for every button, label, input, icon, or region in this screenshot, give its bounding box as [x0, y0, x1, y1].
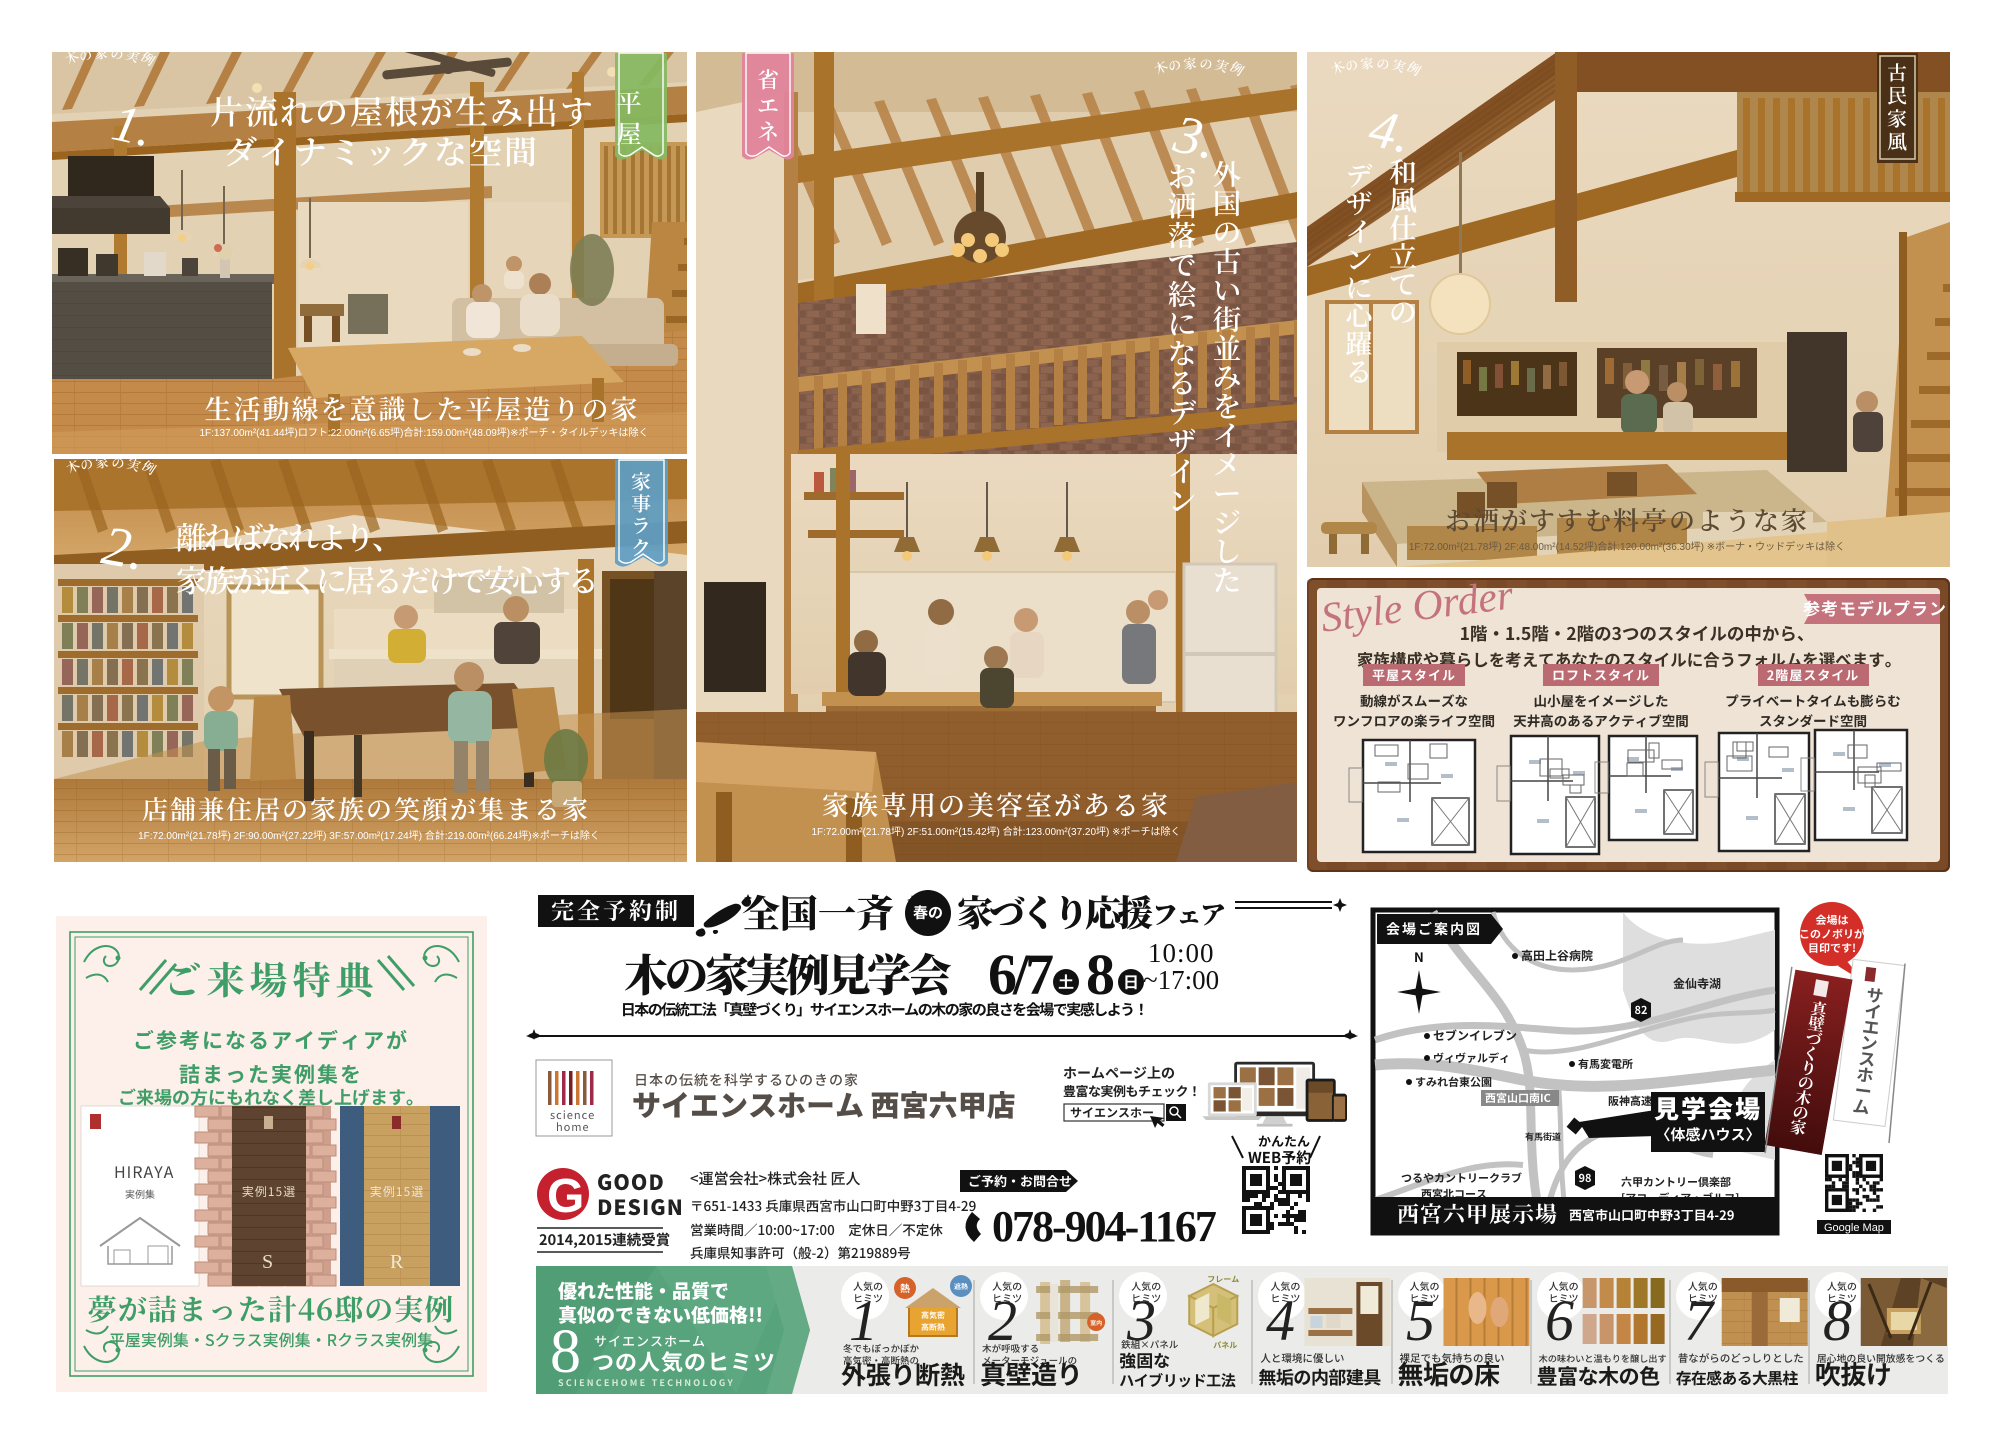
svg-text:1F:72.00m²(21.78坪) 2F:51.00m²(: 1F:72.00m²(21.78坪) 2F:51.00m²(15.42坪) 合計… — [811, 825, 1180, 838]
svg-text:G: G — [547, 1170, 584, 1223]
svg-text:~17:00: ~17:00 — [1143, 965, 1219, 995]
svg-text:1F:137.00m²(41.44坪)ロフト:22.00m²: 1F:137.00m²(41.44坪)ロフト:22.00m²(6.65坪)合計:… — [199, 426, 648, 439]
svg-text:8: 8 — [1823, 1288, 1852, 1353]
svg-text:6: 6 — [1545, 1288, 1574, 1353]
svg-text:7: 7 — [1684, 1288, 1715, 1353]
svg-text:5: 5 — [1406, 1288, 1435, 1353]
svg-text:S: S — [262, 1251, 273, 1273]
svg-text:Google Map: Google Map — [1824, 1222, 1884, 1234]
svg-text:078-904-1167: 078-904-1167 — [992, 1202, 1216, 1251]
svg-text:3: 3 — [1126, 1288, 1156, 1353]
svg-text:8: 8 — [550, 1318, 581, 1386]
svg-text:6/7: 6/7 — [988, 942, 1053, 1007]
svg-text:1F:72.00m²(21.78坪) 2F:90.00m²(: 1F:72.00m²(21.78坪) 2F:90.00m²(27.22坪) 3F… — [138, 829, 600, 842]
svg-text:10:00: 10:00 — [1148, 938, 1215, 968]
svg-text:1F:72.00m²(21.78坪) 2F:48.00m²(: 1F:72.00m²(21.78坪) 2F:48.00m²(14.52坪)合計:… — [1409, 540, 1845, 553]
svg-text:8: 8 — [1086, 942, 1115, 1007]
svg-text:1: 1 — [849, 1288, 878, 1353]
svg-text:R: R — [390, 1251, 404, 1273]
svg-text:2: 2 — [988, 1288, 1017, 1353]
svg-text:4: 4 — [1266, 1288, 1295, 1353]
